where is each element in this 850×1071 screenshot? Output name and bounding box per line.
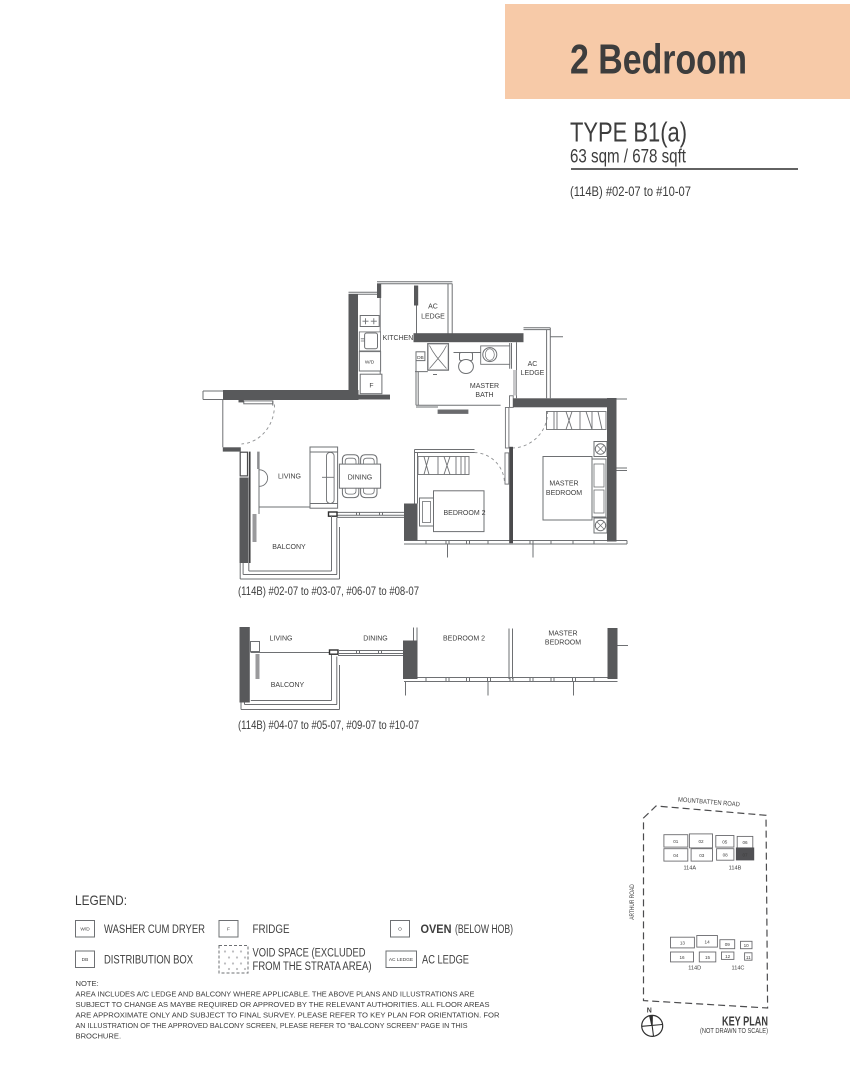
svg-text:FRIDGE: FRIDGE [253, 924, 290, 936]
svg-text:LEGEND:: LEGEND: [75, 892, 127, 908]
svg-text:03: 03 [699, 853, 705, 858]
svg-text:05: 05 [722, 840, 728, 845]
svg-text:AC LEDGE: AC LEDGE [422, 955, 469, 967]
svg-text:16: 16 [679, 955, 685, 960]
svg-text:63 sqm / 678 sqft: 63 sqm / 678 sqft [570, 147, 687, 168]
svg-text:BALCONY: BALCONY [272, 544, 306, 551]
svg-text:14: 14 [705, 940, 711, 945]
svg-text:01: 01 [673, 839, 679, 844]
svg-text:DB: DB [417, 355, 424, 361]
svg-text:ARE APPROXIMATE ONLY AND SUBJE: ARE APPROXIMATE ONLY AND SUBJECT TO FINA… [76, 1011, 501, 1020]
svg-text:11: 11 [746, 955, 751, 960]
svg-text:AC: AC [428, 304, 438, 311]
svg-text:BATH: BATH [475, 392, 493, 399]
svg-text:DINING: DINING [348, 475, 373, 482]
svg-text:13: 13 [680, 941, 686, 946]
svg-text:114B: 114B [729, 866, 742, 872]
svg-text:MASTER: MASTER [470, 383, 499, 390]
svg-text:114D: 114D [688, 966, 701, 972]
svg-text:F: F [227, 927, 230, 933]
svg-text:114A: 114A [683, 866, 696, 872]
svg-text:BALCONY: BALCONY [271, 682, 305, 689]
svg-text:ARTHUR ROAD: ARTHUR ROAD [629, 884, 636, 920]
svg-text:06: 06 [742, 840, 748, 845]
svg-text:SUBJECT TO CHANGE AS MAYBE REQ: SUBJECT TO CHANGE AS MAYBE REQUIRED OR A… [76, 1000, 490, 1009]
svg-text:MASTER: MASTER [548, 631, 577, 638]
svg-text:AREA INCLUDES A/C LEDGE AND BA: AREA INCLUDES A/C LEDGE AND BALCONY WHER… [76, 990, 475, 999]
svg-text:10: 10 [744, 943, 750, 948]
svg-text:LEDGE: LEDGE [421, 314, 445, 321]
svg-text:AC LEDGE: AC LEDGE [389, 957, 413, 963]
svg-text:TYPE B1(a): TYPE B1(a) [570, 117, 687, 148]
svg-text:08: 08 [723, 853, 729, 858]
svg-text:04: 04 [673, 853, 679, 858]
svg-text:DISTRIBUTION BOX: DISTRIBUTION BOX [104, 955, 193, 967]
svg-text:(114B) #02-07 to #03-07, #06-0: (114B) #02-07 to #03-07, #06-07 to #08-0… [238, 584, 419, 598]
svg-text:(114B) #04-07 to #05-07, #09-0: (114B) #04-07 to #05-07, #09-07 to #10-0… [238, 718, 419, 732]
svg-text:BEDROOM: BEDROOM [545, 640, 581, 647]
svg-text:09: 09 [725, 942, 731, 947]
svg-text:BEDROOM 2: BEDROOM 2 [443, 636, 485, 643]
svg-text:OVEN: OVEN [421, 924, 452, 936]
svg-text:07: 07 [742, 853, 748, 858]
svg-text:114C: 114C [732, 966, 745, 972]
svg-text:2 Bedroom: 2 Bedroom [570, 36, 747, 83]
svg-text:LIVING: LIVING [278, 474, 301, 481]
svg-text:BROCHURE.: BROCHURE. [76, 1032, 122, 1041]
svg-text:MASTER: MASTER [549, 481, 578, 488]
svg-text:02: 02 [698, 839, 704, 844]
svg-text:LEDGE: LEDGE [521, 370, 545, 377]
svg-text:W/D: W/D [80, 927, 90, 933]
svg-text:FROM THE STRATA AREA): FROM THE STRATA AREA) [253, 961, 372, 973]
svg-text:NOTE:: NOTE: [76, 979, 99, 988]
svg-text:WASHER CUM DRYER: WASHER CUM DRYER [104, 924, 205, 936]
svg-text:DINING: DINING [363, 636, 388, 643]
svg-text:F: F [369, 383, 373, 390]
svg-text:BEDROOM 2: BEDROOM 2 [443, 510, 485, 517]
svg-text:BEDROOM: BEDROOM [546, 490, 582, 497]
svg-text:N: N [647, 1008, 652, 1015]
svg-text:(BELOW HOB): (BELOW HOB) [455, 924, 513, 936]
svg-text:MOUNTBATTEN ROAD: MOUNTBATTEN ROAD [678, 797, 741, 809]
svg-text:KITCHEN: KITCHEN [383, 335, 414, 342]
svg-text:12: 12 [725, 954, 731, 959]
svg-text:15: 15 [705, 955, 711, 960]
svg-text:W/D: W/D [365, 360, 375, 366]
svg-text:(114B) #02-07 to #10-07: (114B) #02-07 to #10-07 [570, 184, 691, 199]
svg-text:LIVING: LIVING [270, 636, 293, 643]
svg-text:DB: DB [82, 957, 89, 963]
svg-text:(NOT DRAWN TO SCALE): (NOT DRAWN TO SCALE) [700, 1026, 768, 1035]
svg-text:AC: AC [528, 361, 538, 368]
svg-text:AN ILLUSTRATION OF THE APPROVE: AN ILLUSTRATION OF THE APPROVED BALCONY … [76, 1021, 468, 1030]
svg-text:VOID SPACE (EXCLUDED: VOID SPACE (EXCLUDED [253, 948, 366, 960]
svg-text:O: O [398, 927, 402, 933]
